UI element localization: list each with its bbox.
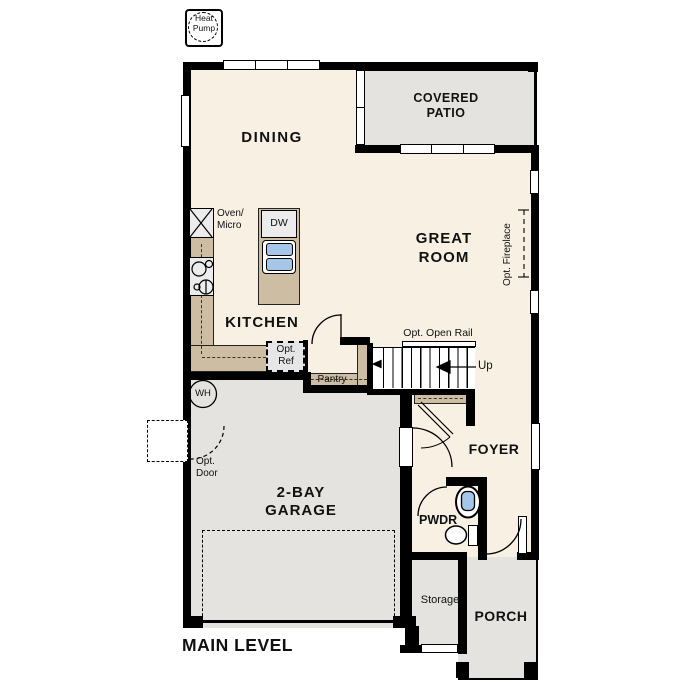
room-label-garage: 2-BAY GARAGE (265, 484, 337, 519)
room-label-porch: PORCH (474, 608, 527, 624)
optional-door-label: Opt. Door (196, 456, 218, 480)
oven-micro-line1: Oven/ (217, 208, 244, 220)
room-label-foyer: FOYER (469, 441, 520, 457)
room-label-great-room: GREAT ROOM (416, 229, 472, 267)
room-label-kitchen: KITCHEN (225, 314, 299, 331)
floor-plan: Heat Pump DINING COVERED PATIO GREAT ROO… (0, 0, 687, 687)
opt-ref-line2: Ref (277, 356, 296, 368)
pantry-door-icon (312, 314, 341, 344)
pwdr-door-arc (418, 487, 447, 516)
great-room-line2: ROOM (416, 248, 472, 267)
optional-fireplace-label: Opt. Fireplace (502, 206, 513, 286)
room-label-covered-patio: COVERED PATIO (413, 91, 478, 121)
toilet-icon (456, 487, 480, 518)
room-label-storage: Storage (421, 594, 460, 606)
heat-pump-line2: Pump (185, 24, 223, 34)
dishwasher-label: DW (270, 217, 288, 229)
great-room-line1: GREAT (416, 229, 472, 248)
water-heater-label: WH (195, 388, 211, 399)
room-label-dining: DINING (241, 129, 303, 146)
closet-door-icon (418, 402, 453, 448)
garage-line1: 2-BAY (265, 484, 337, 502)
oven-micro-line2: Micro (217, 220, 244, 232)
plan-title: MAIN LEVEL (182, 635, 293, 656)
cooktop-sink-circles-icon (192, 261, 213, 295)
optional-fireplace-outline (518, 210, 529, 277)
front-door-arc (486, 519, 521, 554)
up-label: Up (478, 360, 493, 372)
opt-ref-line1: Opt. (277, 344, 296, 356)
optional-door-arc (191, 426, 224, 459)
stairs-up-arrow-icon (373, 361, 476, 374)
open-rail-label: Opt. Open Rail (403, 327, 472, 339)
covered-patio-line2: PATIO (413, 106, 478, 121)
optional-ref-label: Opt. Ref (277, 344, 296, 368)
oven-micro-label: Oven/ Micro (217, 208, 244, 232)
plan-linework (0, 0, 687, 687)
garage-line2: GARAGE (265, 502, 337, 520)
pantry-label: Pantry (318, 374, 347, 385)
covered-patio-line1: COVERED (413, 91, 478, 106)
opt-door-line2: Door (196, 468, 218, 480)
room-label-pwdr: PWDR (419, 513, 457, 527)
oven-micro-x-icon (190, 209, 212, 237)
pwdr-sink-icon (446, 526, 467, 544)
opt-door-line1: Opt. (196, 456, 218, 468)
heat-pump-label: Heat Pump (185, 14, 223, 33)
